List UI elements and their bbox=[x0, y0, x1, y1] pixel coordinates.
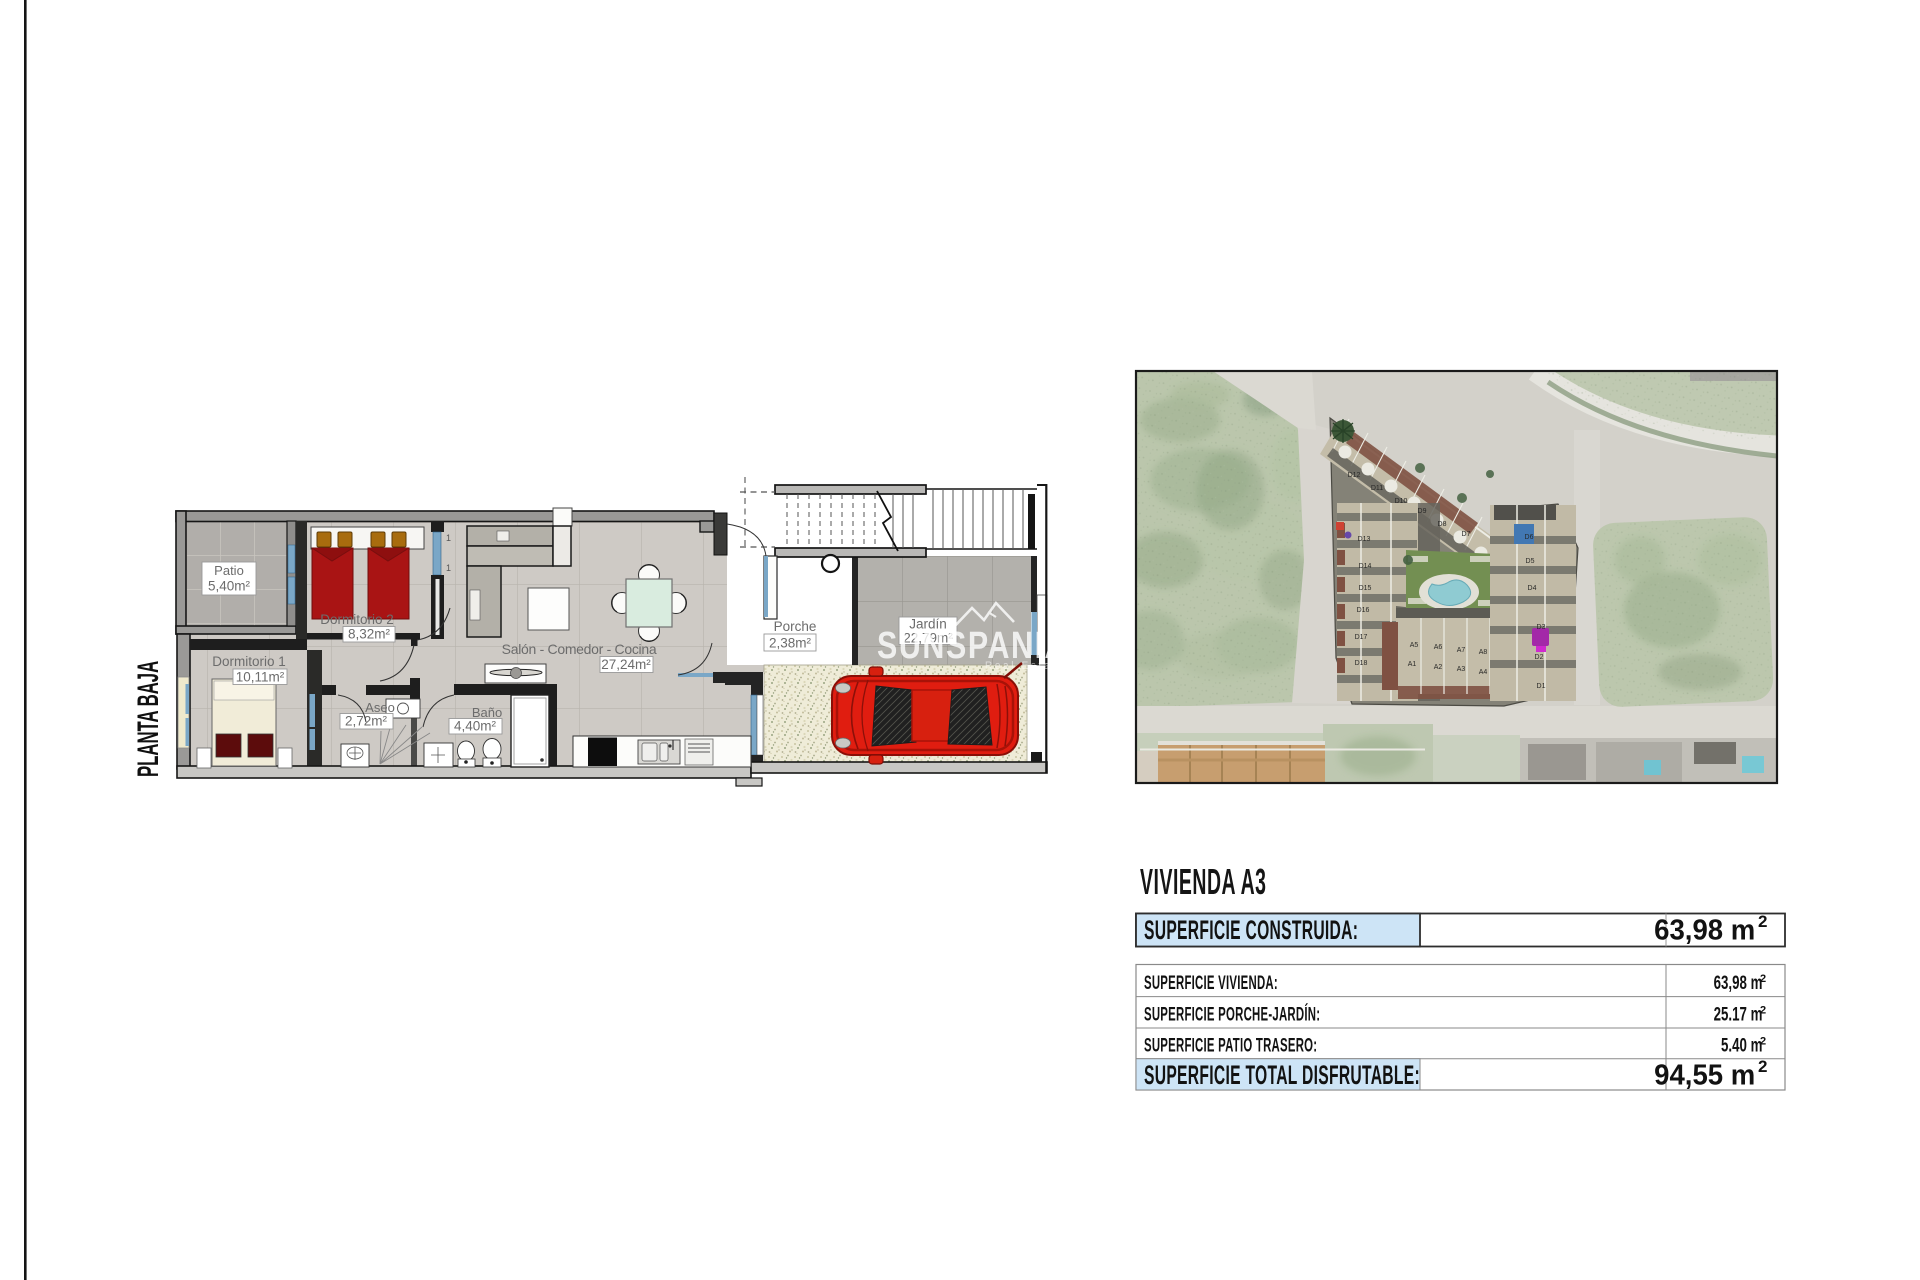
svg-text:SUPERFICIE TOTAL DISFRUTABLE:: SUPERFICIE TOTAL DISFRUTABLE: bbox=[1144, 1060, 1420, 1091]
svg-text:1: 1 bbox=[446, 563, 451, 573]
svg-text:2: 2 bbox=[1758, 1057, 1767, 1076]
svg-text:SUPERFICIE CONSTRUIDA:: SUPERFICIE CONSTRUIDA: bbox=[1144, 915, 1358, 946]
svg-text:Dormitorio 1: Dormitorio 1 bbox=[212, 654, 286, 669]
svg-text:5,40m²: 5,40m² bbox=[208, 579, 251, 594]
svg-text:27,24m²: 27,24m² bbox=[601, 657, 651, 672]
svg-text:10,11m²: 10,11m² bbox=[236, 670, 285, 685]
svg-text:SUPERFICIE PORCHE-JARDÍN:: SUPERFICIE PORCHE-JARDÍN: bbox=[1144, 1002, 1320, 1025]
svg-text:1: 1 bbox=[446, 533, 451, 543]
svg-text:VIVIENDA A3: VIVIENDA A3 bbox=[1140, 863, 1267, 903]
svg-text:Real Estate: Real Estate bbox=[985, 661, 1066, 673]
svg-text:8,32m²: 8,32m² bbox=[348, 627, 391, 642]
svg-text:63,98 m: 63,98 m bbox=[1714, 973, 1763, 994]
svg-text:4,40m²: 4,40m² bbox=[454, 719, 497, 734]
svg-text:SUPERFICIE PATIO TRASERO:: SUPERFICIE PATIO TRASERO: bbox=[1144, 1036, 1317, 1057]
svg-text:2: 2 bbox=[1760, 1036, 1766, 1048]
svg-text:Porche: Porche bbox=[774, 619, 817, 634]
svg-text:PLANTA BAJA: PLANTA BAJA bbox=[132, 661, 165, 777]
svg-text:Dormitorio 2: Dormitorio 2 bbox=[320, 612, 394, 627]
svg-text:25.17 m: 25.17 m bbox=[1714, 1004, 1763, 1025]
svg-text:Patio: Patio bbox=[214, 563, 244, 578]
svg-text:2: 2 bbox=[1758, 912, 1767, 931]
svg-text:SUPERFICIE VIVIENDA:: SUPERFICIE VIVIENDA: bbox=[1144, 973, 1278, 994]
svg-text:94,55 m: 94,55 m bbox=[1654, 1058, 1755, 1091]
svg-text:Salón - Comedor - Cocina: Salón - Comedor - Cocina bbox=[502, 641, 657, 657]
svg-text:5.40 m: 5.40 m bbox=[1721, 1035, 1762, 1056]
svg-text:63,98 m: 63,98 m bbox=[1654, 913, 1755, 946]
svg-text:2: 2 bbox=[1760, 1005, 1766, 1017]
svg-text:2: 2 bbox=[1760, 973, 1766, 985]
svg-text:2,38m²: 2,38m² bbox=[769, 636, 812, 651]
